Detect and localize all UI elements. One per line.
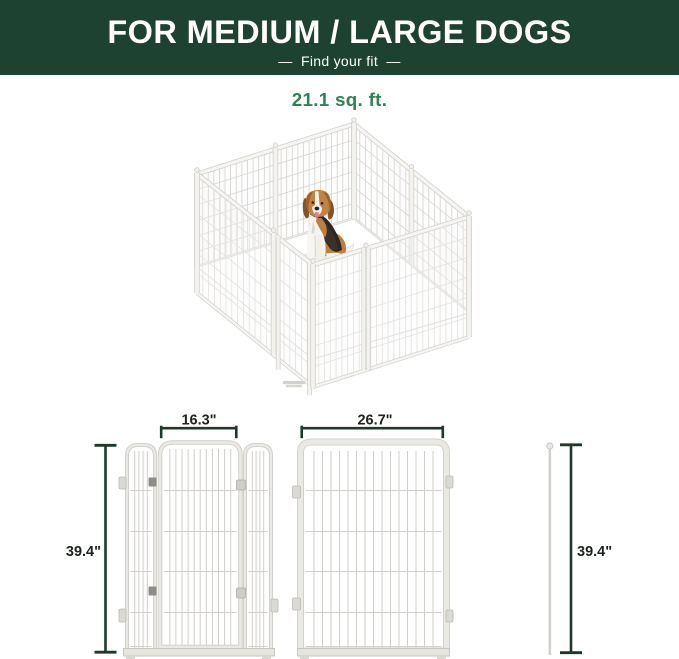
svg-text:39.4": 39.4" — [577, 544, 612, 560]
svg-text:26.7": 26.7" — [357, 413, 392, 429]
svg-text:16.3": 16.3" — [181, 413, 216, 429]
svg-text:39.4": 39.4" — [66, 544, 101, 560]
